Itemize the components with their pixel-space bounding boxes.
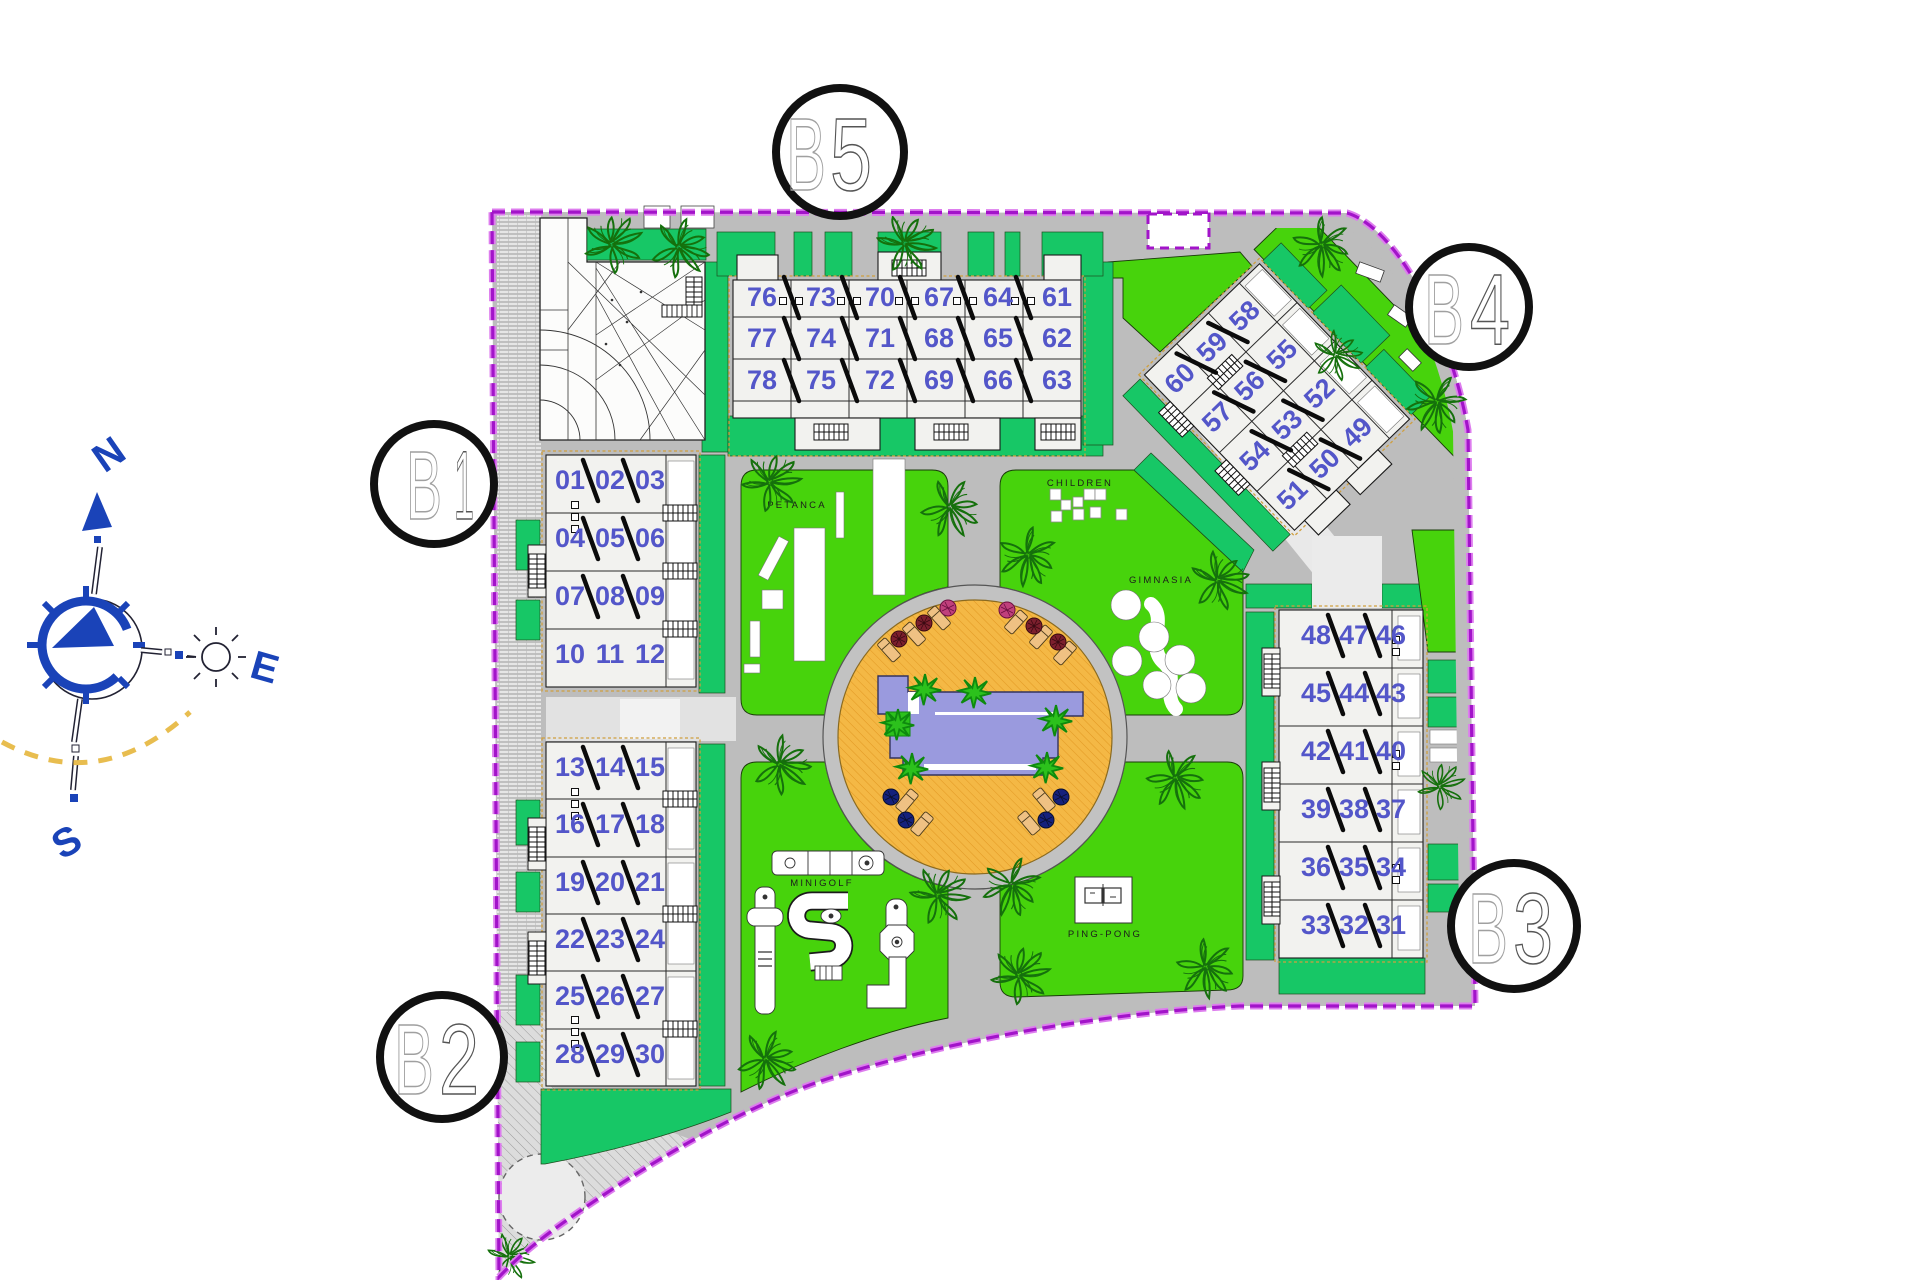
svg-text:42: 42	[1301, 736, 1331, 766]
svg-text:03: 03	[635, 465, 665, 495]
svg-text:33: 33	[1301, 910, 1331, 940]
svg-text:13: 13	[555, 752, 585, 782]
svg-text:GIMNASIA: GIMNASIA	[1129, 575, 1193, 586]
svg-text:15: 15	[635, 752, 665, 782]
svg-text:09: 09	[635, 581, 665, 611]
svg-text:3: 3	[1513, 873, 1553, 985]
svg-text:28: 28	[555, 1039, 585, 1069]
svg-text:2: 2	[439, 1004, 479, 1116]
svg-text:16: 16	[555, 809, 585, 839]
svg-text:23: 23	[595, 924, 625, 954]
svg-text:18: 18	[635, 809, 665, 839]
svg-text:CHILDREN: CHILDREN	[1047, 478, 1113, 489]
svg-text:44: 44	[1339, 678, 1369, 708]
svg-text:63: 63	[1042, 365, 1072, 395]
svg-text:02: 02	[595, 465, 625, 495]
svg-text:01: 01	[555, 465, 585, 495]
svg-text:PING-PONG: PING-PONG	[1068, 929, 1142, 940]
svg-text:32: 32	[1339, 910, 1369, 940]
svg-text:MINIGOLF: MINIGOLF	[790, 878, 854, 889]
svg-text:48: 48	[1301, 620, 1331, 650]
svg-text:34: 34	[1376, 852, 1406, 882]
svg-text:12: 12	[635, 639, 665, 669]
svg-text:45: 45	[1301, 678, 1331, 708]
svg-text:4: 4	[1470, 254, 1510, 366]
svg-text:11: 11	[596, 639, 625, 669]
svg-text:78: 78	[747, 365, 777, 395]
svg-text:25: 25	[555, 981, 585, 1011]
svg-text:46: 46	[1376, 620, 1406, 650]
svg-text:08: 08	[595, 581, 625, 611]
svg-text:36: 36	[1301, 852, 1331, 882]
svg-text:20: 20	[595, 867, 625, 897]
svg-text:06: 06	[635, 523, 665, 553]
svg-text:B: B	[1468, 873, 1508, 985]
svg-text:24: 24	[635, 924, 665, 954]
svg-text:71: 71	[865, 323, 895, 353]
svg-text:27: 27	[635, 981, 665, 1011]
svg-text:76: 76	[747, 282, 777, 312]
svg-text:B: B	[1424, 254, 1464, 366]
svg-text:62: 62	[1042, 323, 1072, 353]
svg-text:14: 14	[595, 752, 625, 782]
svg-text:40: 40	[1376, 736, 1406, 766]
svg-text:07: 07	[555, 581, 585, 611]
svg-text:61: 61	[1042, 282, 1072, 312]
svg-text:70: 70	[865, 282, 895, 312]
svg-text:39: 39	[1301, 794, 1331, 824]
svg-text:1: 1	[454, 431, 474, 540]
svg-text:69: 69	[924, 365, 954, 395]
svg-text:10: 10	[555, 639, 585, 669]
svg-text:47: 47	[1339, 620, 1369, 650]
svg-text:72: 72	[865, 365, 895, 395]
svg-text:38: 38	[1339, 794, 1369, 824]
svg-text:PETANCA: PETANCA	[767, 500, 827, 511]
svg-text:05: 05	[595, 523, 625, 553]
svg-text:22: 22	[555, 924, 585, 954]
svg-text:75: 75	[806, 365, 836, 395]
svg-text:77: 77	[747, 323, 777, 353]
svg-text:74: 74	[806, 323, 836, 353]
svg-text:19: 19	[555, 867, 585, 897]
svg-text:17: 17	[595, 809, 625, 839]
svg-text:5: 5	[830, 97, 872, 212]
svg-text:66: 66	[983, 365, 1013, 395]
svg-text:04: 04	[555, 523, 585, 553]
svg-text:65: 65	[983, 323, 1013, 353]
svg-text:37: 37	[1376, 794, 1406, 824]
svg-text:26: 26	[595, 981, 625, 1011]
svg-text:B: B	[394, 1004, 434, 1116]
svg-text:B: B	[406, 431, 442, 540]
svg-text:64: 64	[983, 282, 1013, 312]
svg-text:68: 68	[924, 323, 954, 353]
svg-text:29: 29	[595, 1039, 625, 1069]
svg-text:67: 67	[924, 282, 954, 312]
svg-text:B: B	[786, 97, 826, 212]
svg-text:35: 35	[1339, 852, 1369, 882]
svg-text:73: 73	[806, 282, 836, 312]
svg-text:21: 21	[635, 867, 665, 897]
svg-text:30: 30	[635, 1039, 665, 1069]
svg-text:31: 31	[1376, 910, 1406, 940]
svg-text:41: 41	[1339, 736, 1369, 766]
svg-text:43: 43	[1376, 678, 1406, 708]
